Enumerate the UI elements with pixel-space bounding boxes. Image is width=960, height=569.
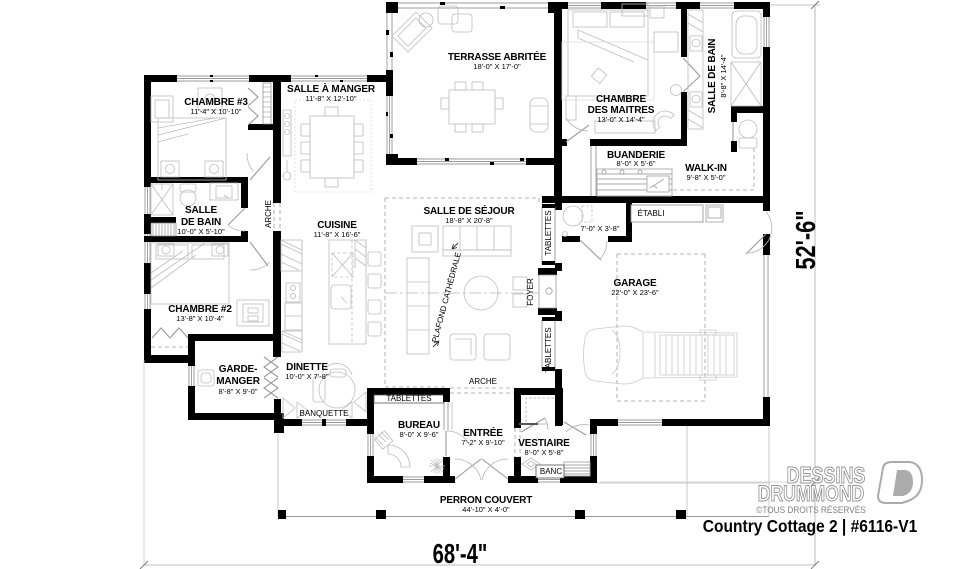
svg-text:9'-8" X 5'-0": 9'-8" X 5'-0" — [686, 173, 725, 182]
svg-text:©TOUS DROITS RÉSERVÉS: ©TOUS DROITS RÉSERVÉS — [756, 505, 866, 515]
svg-text:8'-0" X 9'-6": 8'-0" X 9'-6" — [399, 430, 438, 439]
svg-text:13'-0" X 14'-4": 13'-0" X 14'-4" — [597, 115, 645, 124]
svg-text:MANGER: MANGER — [216, 376, 260, 387]
svg-text:18'-8" X 20'-8": 18'-8" X 20'-8" — [445, 216, 493, 225]
svg-text:ARCHE: ARCHE — [264, 200, 273, 228]
svg-text:DRUMMOND: DRUMMOND — [758, 482, 864, 506]
svg-text:68'-4": 68'-4" — [433, 539, 488, 569]
svg-text:52'-6": 52'-6" — [790, 210, 821, 269]
svg-text:SALLE: SALLE — [185, 205, 218, 216]
svg-text:8'-8" X 14'-4": 8'-8" X 14'-4" — [719, 54, 728, 98]
svg-text:11'-8" X 12'-10": 11'-8" X 12'-10" — [306, 94, 357, 103]
svg-text:13'-8" X 10'-4": 13'-8" X 10'-4" — [176, 314, 224, 323]
svg-text:44'-10" X 4'-0": 44'-10" X 4'-0" — [462, 505, 510, 514]
svg-text:CHAMBRE: CHAMBRE — [596, 94, 647, 105]
svg-text:BANQUETTE: BANQUETTE — [300, 409, 349, 418]
svg-text:7'-2" X 9'-10": 7'-2" X 9'-10" — [461, 438, 505, 447]
svg-text:GARDE-: GARDE- — [219, 364, 258, 375]
svg-text:TABLETTES: TABLETTES — [544, 210, 553, 255]
svg-text:8'-0" X 5'-6": 8'-0" X 5'-6" — [616, 159, 655, 168]
svg-text:8'-8" X 9'-0": 8'-8" X 9'-0" — [218, 387, 257, 396]
svg-text:11'-8" X 16'-6": 11'-8" X 16'-6" — [314, 230, 361, 239]
svg-text:BANC: BANC — [540, 467, 562, 476]
svg-text:ARCHE: ARCHE — [469, 377, 497, 386]
svg-text:ÉTABLI: ÉTABLI — [638, 209, 665, 218]
svg-text:10'-0" X 7'-8": 10'-0" X 7'-8" — [285, 372, 329, 381]
svg-text:18'-0" X 17'-0": 18'-0" X 17'-0" — [473, 62, 521, 71]
svg-text:7'-0" X 3'-8": 7'-0" X 3'-8" — [580, 224, 619, 233]
svg-text:10'-0" X 5'-10": 10'-0" X 5'-10" — [177, 227, 225, 236]
svg-text:11'-4" X 10'-10": 11'-4" X 10'-10" — [191, 107, 242, 116]
svg-text:FOYER: FOYER — [526, 278, 535, 306]
svg-text:SALLE DE BAIN: SALLE DE BAIN — [707, 39, 718, 114]
svg-text:8'-0" X 5'-8": 8'-0" X 5'-8" — [524, 448, 563, 457]
svg-text:Country Cottage 2 | #6116-V1: Country Cottage 2 | #6116-V1 — [703, 516, 917, 536]
svg-text:22'-0" X 23'-6": 22'-0" X 23'-6" — [611, 288, 659, 297]
svg-text:TABLETTES: TABLETTES — [544, 327, 553, 372]
svg-text:TABLETTES: TABLETTES — [386, 394, 431, 403]
